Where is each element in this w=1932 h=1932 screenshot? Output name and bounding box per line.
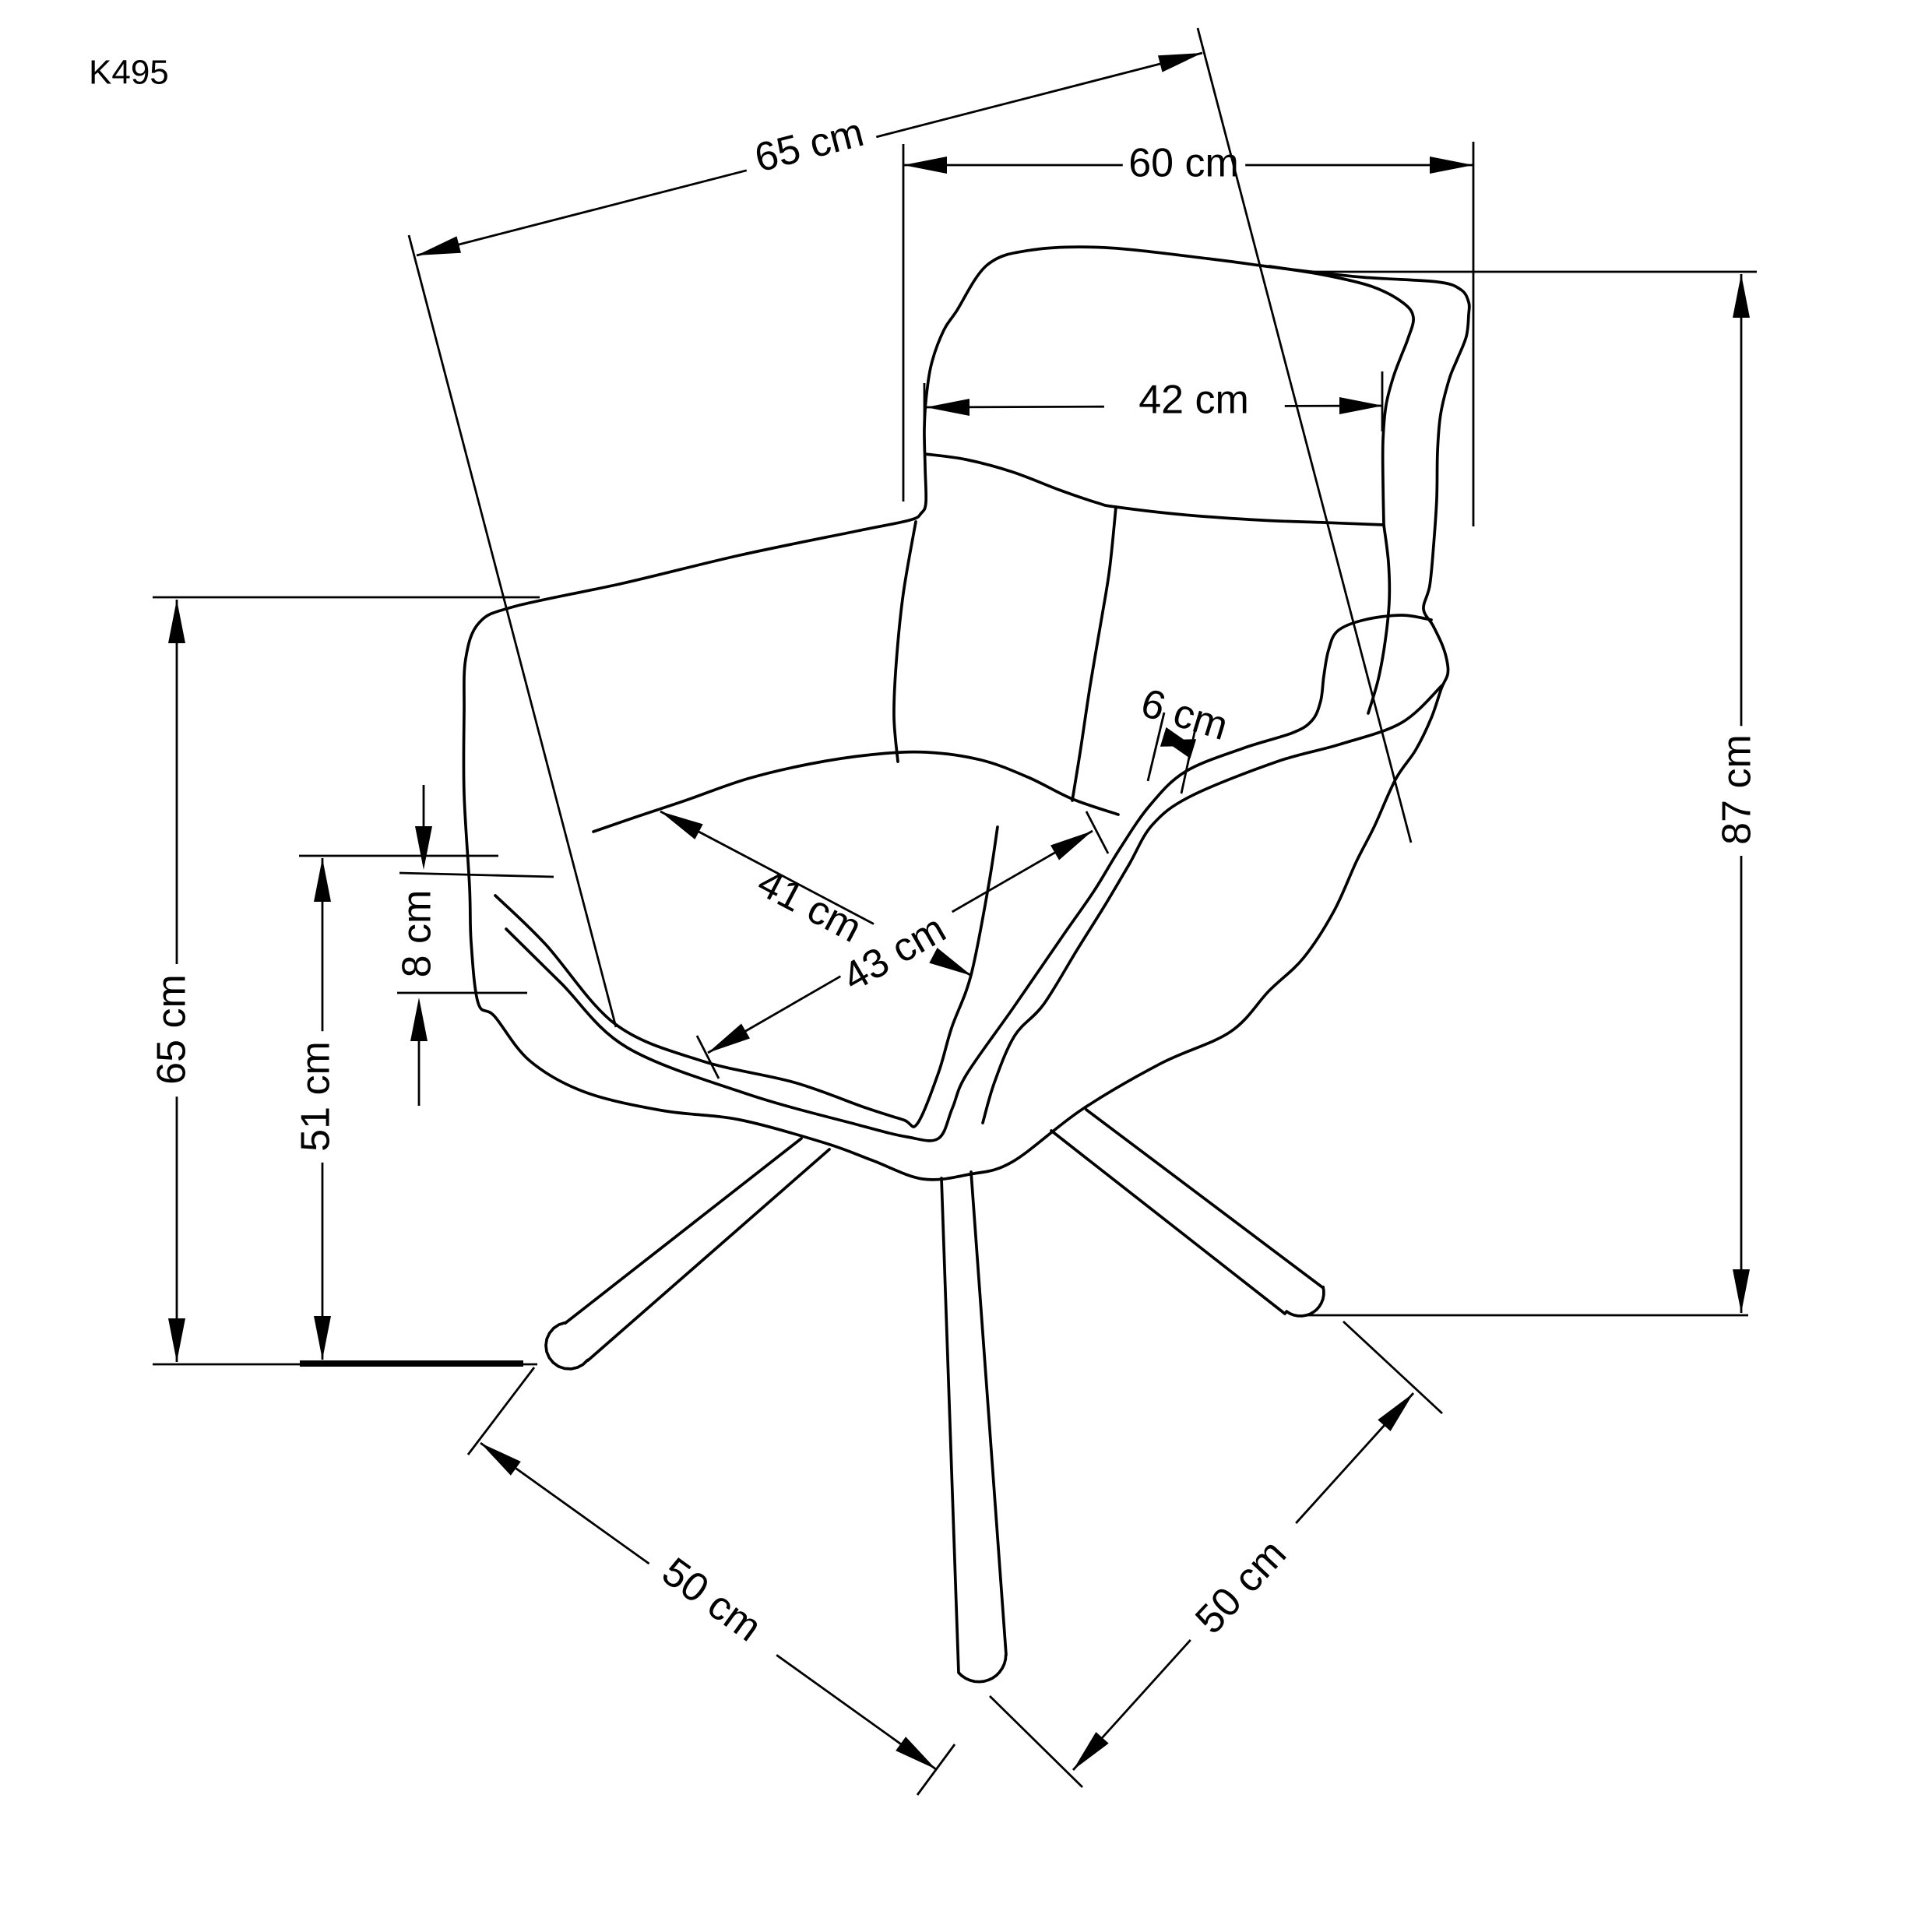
svg-text:87 cm: 87 cm bbox=[1715, 734, 1760, 845]
svg-text:K495: K495 bbox=[89, 54, 169, 92]
svg-text:65 cm: 65 cm bbox=[150, 974, 195, 1085]
svg-text:60 cm: 60 cm bbox=[1128, 141, 1239, 186]
svg-text:42 cm: 42 cm bbox=[1138, 378, 1249, 423]
svg-text:8 cm: 8 cm bbox=[395, 890, 440, 978]
svg-text:51 cm: 51 cm bbox=[294, 1041, 339, 1152]
